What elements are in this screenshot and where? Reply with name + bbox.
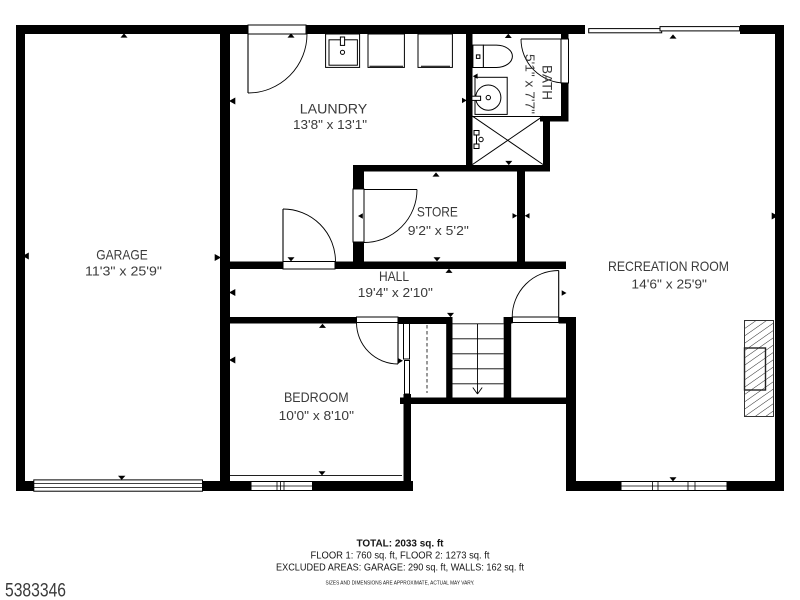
svg-text:BEDROOM: BEDROOM [284, 390, 349, 405]
svg-text:9'2" x 5'2": 9'2" x 5'2" [408, 223, 469, 238]
svg-text:11'3" x 25'9": 11'3" x 25'9" [85, 263, 162, 278]
svg-text:5'1" x 7'7": 5'1" x 7'7" [523, 54, 538, 114]
svg-text:LAUNDRY: LAUNDRY [300, 101, 368, 116]
svg-text:5383346: 5383346 [5, 581, 66, 600]
svg-text:HALL: HALL [379, 269, 409, 284]
svg-text:TOTAL: 2033 sq. ft: TOTAL: 2033 sq. ft [357, 539, 445, 550]
svg-text:BATH: BATH [539, 65, 554, 100]
svg-text:SIZES AND DIMENSIONS ARE APPRO: SIZES AND DIMENSIONS ARE APPROXIMATE, AC… [326, 581, 475, 587]
svg-text:GARAGE: GARAGE [96, 247, 148, 262]
svg-text:EXCLUDED AREAS: GARAGE: 290 sq: EXCLUDED AREAS: GARAGE: 290 sq. ft, WALL… [276, 563, 524, 574]
svg-text:19'4" x 2'10": 19'4" x 2'10" [358, 285, 433, 300]
svg-text:14'6" x 25'9": 14'6" x 25'9" [631, 276, 707, 291]
svg-text:RECREATION ROOM: RECREATION ROOM [608, 259, 729, 274]
svg-text:FLOOR 1: 760 sq. ft, FLOOR 2:: FLOOR 1: 760 sq. ft, FLOOR 2: 1273 sq. f… [311, 551, 490, 562]
svg-text:STORE: STORE [417, 204, 458, 219]
svg-text:10'0" x 8'10": 10'0" x 8'10" [279, 408, 355, 423]
svg-text:13'8" x 13'1": 13'8" x 13'1" [293, 117, 367, 132]
